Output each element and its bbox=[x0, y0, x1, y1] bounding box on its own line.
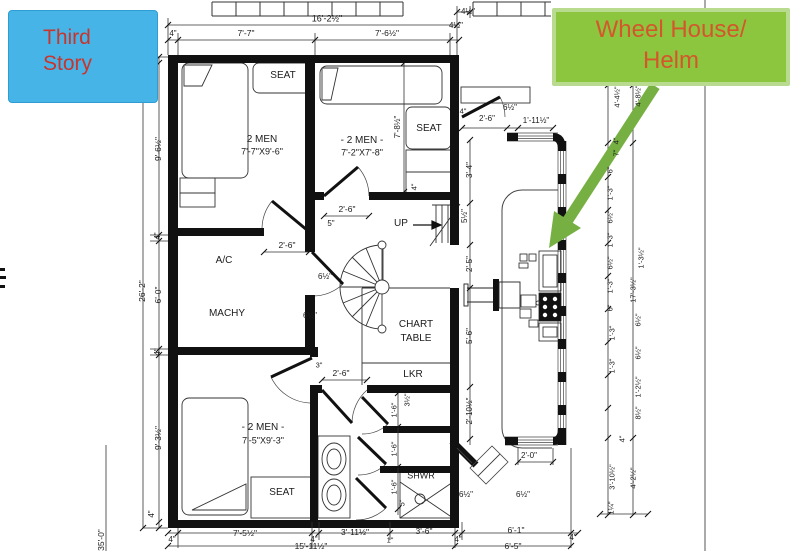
dim-label: 5" bbox=[327, 220, 334, 228]
dim-label: 1'-6" bbox=[390, 442, 398, 457]
dim-label: 7'-5½" bbox=[233, 529, 257, 538]
dim-label: 4½" bbox=[449, 22, 463, 30]
wc-counter bbox=[318, 436, 350, 518]
dim-label: 1'-3" bbox=[606, 279, 614, 294]
dim-label: 1'-3" bbox=[606, 233, 614, 248]
berth-cabin3 bbox=[182, 398, 248, 515]
dim-label: 8½" bbox=[634, 406, 642, 419]
toilet-1 bbox=[322, 443, 346, 475]
room-label-seat-3: SEAT bbox=[269, 488, 294, 498]
dim-label: 17'-3½" bbox=[629, 277, 637, 302]
room-label-ac: A/C bbox=[216, 256, 233, 266]
dim-label: 6'-1" bbox=[508, 526, 525, 535]
dim-label: 1'-6" bbox=[390, 403, 398, 418]
wheelhouse-line2: Helm bbox=[556, 45, 786, 76]
dim-label: 9'-6½" bbox=[154, 137, 163, 161]
toilet-2 bbox=[322, 479, 346, 511]
dim-label: 4½" bbox=[461, 8, 475, 16]
dim-label: 4'-8½" bbox=[634, 85, 642, 106]
pillow-cabin2 bbox=[322, 68, 338, 100]
dim-label: 4" bbox=[154, 232, 162, 239]
dim-label: 4" bbox=[569, 534, 576, 542]
dim-label: 35'-0" bbox=[97, 529, 106, 551]
dim-label: 9'-3½" bbox=[154, 426, 163, 450]
dim-label: 4" bbox=[618, 436, 626, 443]
dimension-lines bbox=[106, 6, 648, 551]
dim-label: 6" bbox=[606, 305, 614, 312]
helm-chair bbox=[464, 279, 520, 311]
page-edge-marks bbox=[0, 268, 6, 288]
dim-label: 3'-4" bbox=[466, 162, 474, 178]
third-story-callout: Third Story bbox=[8, 10, 158, 103]
dim-label: 6½" bbox=[318, 273, 332, 281]
dim-label: 6½" bbox=[606, 256, 614, 269]
dim-label: 4'-2½" bbox=[629, 467, 637, 488]
room-label-lkr: LKR bbox=[403, 370, 422, 380]
dim-label: 5'-6" bbox=[466, 328, 474, 344]
room-label-2men-1: 2 MEN bbox=[247, 135, 278, 145]
wheelhouse-arrow bbox=[549, 86, 655, 248]
dim-label: 2'-0" bbox=[521, 452, 537, 460]
dim-label: 6" bbox=[606, 167, 614, 174]
spiral-stair bbox=[340, 241, 389, 333]
dim-label: 6½" bbox=[459, 491, 473, 499]
room-label-table: TABLE bbox=[401, 334, 432, 344]
dim-label: 6½" bbox=[606, 210, 614, 223]
wheelhouse-line1: Wheel House/ bbox=[556, 14, 786, 45]
aft-steps bbox=[452, 441, 508, 484]
dim-label: 2'-6" bbox=[479, 115, 495, 123]
dim-label: 4" bbox=[454, 536, 461, 544]
pillow-cabin1 bbox=[184, 65, 212, 86]
dim-label: 4" bbox=[168, 536, 175, 544]
dim-label: 26'-2" bbox=[138, 280, 147, 302]
dim-label: 4" bbox=[154, 348, 162, 355]
helm-console bbox=[519, 251, 561, 341]
dim-label: 1'-3" bbox=[608, 326, 616, 341]
dim-label: 6½" bbox=[634, 346, 642, 359]
dim-label: 6'-0" bbox=[154, 287, 163, 304]
dim-label: 1'-3" bbox=[608, 359, 616, 374]
dim-label: 1¼" bbox=[607, 501, 615, 514]
dim-label: 2'-6" bbox=[339, 205, 356, 214]
dim-label: 6½" bbox=[516, 491, 530, 499]
third-story-line1: Third bbox=[43, 25, 157, 51]
room-label-2men-3: - 2 MEN - bbox=[242, 423, 285, 433]
dim-label: 6½" bbox=[634, 313, 642, 326]
top-ruler bbox=[212, 2, 551, 16]
dim-label: 6'-5" bbox=[505, 542, 522, 551]
dim-label: 2'-10½" bbox=[466, 397, 474, 424]
dim-label: 7'-6½" bbox=[375, 29, 399, 38]
berth-cabin1 bbox=[182, 63, 248, 178]
dim-label: 7" bbox=[612, 150, 620, 157]
dim-label: 2'-6" bbox=[333, 369, 350, 378]
up-arrow bbox=[413, 221, 441, 229]
dim-label: 1'-6" bbox=[390, 480, 398, 495]
dim-label: 7'-8½" bbox=[394, 116, 402, 139]
dim-label: 6½" bbox=[503, 104, 517, 112]
dim-label: 15'-11½" bbox=[295, 542, 328, 551]
dim-label: 5" bbox=[398, 500, 406, 507]
dim-label: 5½" bbox=[461, 209, 469, 223]
wheelhouse-glazing bbox=[505, 133, 566, 445]
room-label-shwr: SHWR bbox=[407, 472, 435, 481]
dim-label: 4" bbox=[460, 107, 467, 115]
room-label-machy: MACHY bbox=[209, 309, 245, 319]
room-size-2men-3: 7'-5"X9'-3" bbox=[242, 437, 284, 446]
furniture bbox=[180, 63, 530, 518]
dim-label: 4" bbox=[410, 184, 418, 191]
dim-label: 3'-10½" bbox=[608, 464, 616, 489]
dim-label: 1" bbox=[387, 536, 394, 544]
dim-label: 2'-6" bbox=[279, 241, 296, 250]
dim-label: 1'-11½" bbox=[523, 117, 549, 125]
room-size-2men-2: 7'-2"X7'-8" bbox=[341, 149, 383, 158]
walls bbox=[168, 55, 566, 528]
room-size-2men-1: 7'-7"X9'-6" bbox=[241, 148, 283, 157]
floor-plan-sheet: SEAT2 MEN7'-7"X9'-6"- 2 MEN -7'-2"X7'-8"… bbox=[0, 0, 800, 551]
stair-label-up: UP bbox=[394, 219, 408, 229]
berth-cabin2 bbox=[320, 66, 442, 104]
dim-label: 6½" bbox=[303, 312, 317, 320]
third-story-line2: Story bbox=[43, 51, 157, 77]
dim-label: 1'-3" bbox=[606, 186, 614, 201]
dim-label: 4" bbox=[169, 30, 176, 38]
dim-label: 4" bbox=[148, 510, 156, 517]
dim-label: 3'-11½" bbox=[341, 528, 369, 537]
dim-label: 4'-4½" bbox=[613, 86, 621, 107]
dim-label: 1'-3½" bbox=[637, 247, 645, 268]
dim-label: 7'-7" bbox=[238, 29, 255, 38]
berth-wedge bbox=[192, 484, 246, 510]
dim-label: 3½" bbox=[403, 393, 411, 406]
dim-label: 3" bbox=[316, 361, 323, 369]
room-label-seat-1: SEAT bbox=[270, 71, 295, 81]
room-label-seat-2: SEAT bbox=[416, 124, 441, 134]
dim-label: 1'-2½" bbox=[634, 376, 642, 397]
room-label-2men-2: - 2 MEN - bbox=[341, 136, 384, 146]
dim-label: 2'-5" bbox=[466, 256, 474, 272]
wheelhouse-callout: Wheel House/ Helm bbox=[552, 8, 790, 86]
dim-label: 3'-6" bbox=[416, 527, 433, 536]
room-label-chart: CHART bbox=[399, 320, 433, 330]
dim-label: 4" bbox=[612, 138, 620, 145]
dim-label: 16'-2½" bbox=[312, 15, 342, 24]
